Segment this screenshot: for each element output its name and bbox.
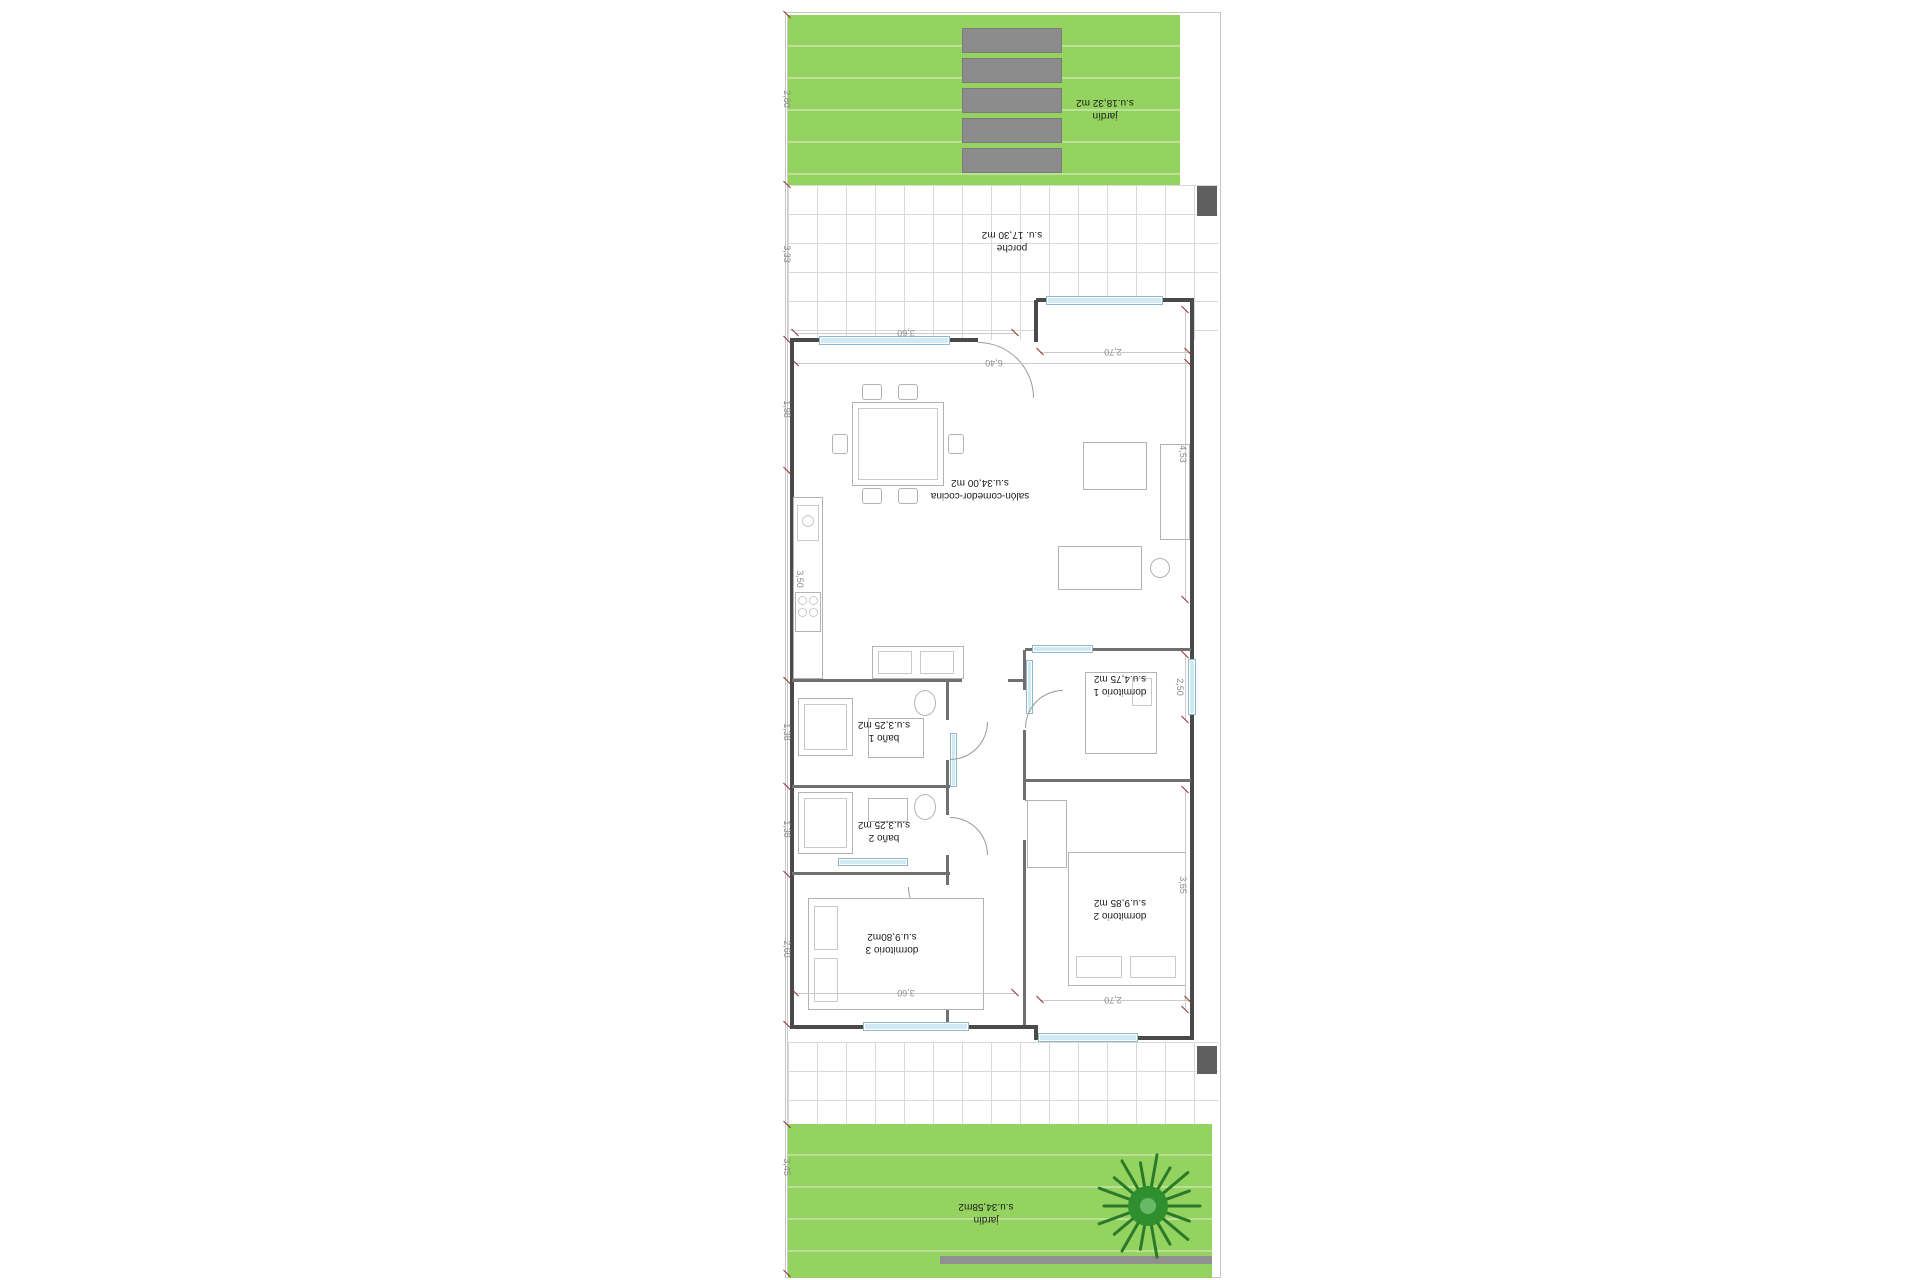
interior-wall bbox=[792, 785, 950, 788]
appliance bbox=[878, 651, 912, 674]
interior-wall bbox=[792, 872, 950, 875]
chair bbox=[898, 384, 918, 400]
dim-label: 3,45 bbox=[782, 1154, 792, 1180]
dimension-tick-icon bbox=[1035, 347, 1045, 357]
dim-label: 3,50 bbox=[795, 566, 805, 592]
plant-icon bbox=[1092, 1150, 1204, 1262]
dimension-tick-icon bbox=[790, 328, 800, 338]
dim-label: 4,53 bbox=[1178, 441, 1188, 467]
burner bbox=[809, 608, 818, 617]
room-name: dormitorio 3 bbox=[817, 943, 967, 956]
dimension-tick-icon bbox=[782, 10, 792, 20]
room-area: s.u.34,00 m2 bbox=[905, 476, 1055, 489]
wall bbox=[1190, 715, 1194, 1040]
dimension-tick-icon bbox=[1180, 1005, 1190, 1015]
dimension-tick-icon bbox=[1183, 347, 1193, 357]
dim-label: 2,70 bbox=[1098, 995, 1128, 1005]
porch-label: porche s.u. 17,30 m2 bbox=[937, 228, 1087, 254]
dimension-tick-icon bbox=[790, 988, 800, 998]
dimension-tick-icon bbox=[782, 676, 792, 686]
room-area: s.u.9,80m2 bbox=[817, 930, 967, 943]
room-name: dormitorio 1 bbox=[1045, 685, 1195, 698]
garden-top-label: jardín s.u.18,32 m2 bbox=[1030, 96, 1180, 122]
window bbox=[1046, 296, 1163, 305]
wall bbox=[790, 1025, 863, 1029]
side-table bbox=[1150, 558, 1170, 578]
dormitorio3-label: dormitorio 3 s.u.9,80m2 bbox=[817, 930, 967, 956]
sink-basin bbox=[802, 515, 814, 527]
dimension-tick-icon bbox=[782, 180, 792, 190]
garden-bottom-label: jardín s.u.34,58m2 bbox=[911, 1200, 1061, 1226]
terrace-tiles bbox=[788, 1042, 1218, 1124]
room-area: s.u.4,75 m2 bbox=[1045, 672, 1195, 685]
dimension-tick-icon bbox=[1010, 328, 1020, 338]
dimension-tick-icon bbox=[1180, 715, 1190, 725]
window bbox=[1038, 1033, 1138, 1042]
dim-label: 3,33 bbox=[782, 241, 792, 267]
interior-wall bbox=[946, 681, 949, 720]
dining-table-top bbox=[858, 408, 938, 480]
room-name: salón-comedor-cocina bbox=[905, 489, 1055, 502]
room-area: s.u.34,58m2 bbox=[911, 1200, 1061, 1213]
paver-slab bbox=[962, 148, 1062, 173]
dimension-tick-icon bbox=[790, 358, 800, 368]
room-name: porche bbox=[937, 241, 1087, 254]
window bbox=[838, 858, 908, 866]
paver-slab bbox=[962, 58, 1062, 83]
interior-wall bbox=[792, 679, 950, 682]
wall bbox=[1138, 1036, 1194, 1040]
dimension-line bbox=[1185, 655, 1186, 720]
dimension-tick-icon bbox=[1180, 595, 1190, 605]
tv-unit bbox=[1083, 442, 1147, 490]
room-name: dormitorio 2 bbox=[1045, 909, 1195, 922]
dim-label: 2,50 bbox=[1175, 674, 1185, 700]
dim-label: 3,60 bbox=[891, 328, 921, 338]
dimension-tick-icon bbox=[782, 466, 792, 476]
dormitorio2-label: dormitorio 2 s.u.9,85 m2 bbox=[1045, 896, 1195, 922]
dim-label: 1,38 bbox=[782, 719, 792, 745]
room-area: s.u.3,25 m2 bbox=[809, 718, 959, 731]
window bbox=[1032, 645, 1093, 653]
dimension-tick-icon bbox=[1180, 650, 1190, 660]
dim-label: 1,38 bbox=[782, 816, 792, 842]
sofa bbox=[1058, 546, 1142, 590]
room-name: jardín bbox=[1030, 109, 1180, 122]
wall bbox=[950, 338, 978, 342]
dim-label: 1,98 bbox=[782, 396, 792, 422]
interior-wall bbox=[1093, 648, 1191, 651]
toilet bbox=[914, 690, 936, 716]
room-name: jardín bbox=[911, 1213, 1061, 1226]
dimension-tick-icon bbox=[1180, 785, 1190, 795]
dimension-tick-icon bbox=[782, 1269, 792, 1279]
window bbox=[863, 1022, 969, 1031]
dim-label: 6,40 bbox=[979, 358, 1009, 368]
porch-pillar bbox=[1197, 186, 1217, 216]
interior-wall bbox=[1025, 648, 1032, 651]
bano2-label: baño 2 s.u.3,25 m2 bbox=[809, 818, 959, 844]
dimension-tick-icon bbox=[782, 1020, 792, 1030]
chair bbox=[948, 434, 964, 454]
dim-label: 2,80 bbox=[782, 86, 792, 112]
interior-wall bbox=[946, 760, 949, 815]
room-area: s.u.9,85 m2 bbox=[1045, 896, 1195, 909]
dimension-tick-icon bbox=[782, 1120, 792, 1130]
wall bbox=[790, 338, 819, 342]
dimension-tick-icon bbox=[1183, 358, 1193, 368]
bano1-label: baño 1 s.u.3,25 m2 bbox=[809, 718, 959, 744]
wall bbox=[1034, 300, 1038, 342]
dimension-tick-icon bbox=[782, 870, 792, 880]
interior-wall bbox=[1023, 840, 1026, 1025]
dimension-line bbox=[1185, 790, 1186, 1010]
interior-wall bbox=[1023, 730, 1026, 800]
floor-plan: jardín s.u.18,32 m2 porche s.u. 17,30 m2 bbox=[0, 0, 1920, 1280]
wardrobe bbox=[1027, 800, 1067, 868]
burner bbox=[809, 596, 818, 605]
room-area: s.u.18,32 m2 bbox=[1030, 96, 1180, 109]
dimension-tick-icon bbox=[1180, 305, 1190, 315]
chair bbox=[832, 434, 848, 454]
house-floor-right bbox=[1036, 302, 1192, 344]
interior-wall bbox=[948, 679, 962, 682]
appliance bbox=[920, 651, 954, 674]
interior-wall bbox=[1025, 779, 1191, 782]
dimension-tick-icon bbox=[1010, 988, 1020, 998]
dim-label: 2,70 bbox=[1098, 347, 1128, 357]
chair bbox=[862, 488, 882, 504]
salon-label: salón-comedor-cocina s.u.34,00 m2 bbox=[905, 476, 1055, 502]
pillow bbox=[1130, 956, 1176, 978]
dim-label: 3,60 bbox=[891, 988, 921, 998]
dim-label: 3,65 bbox=[1178, 872, 1188, 898]
dim-label: 2,60 bbox=[782, 936, 792, 962]
room-area: s.u. 17,30 m2 bbox=[937, 228, 1087, 241]
wall bbox=[1036, 298, 1046, 302]
dimension-tick-icon bbox=[1035, 995, 1045, 1005]
window bbox=[819, 336, 950, 345]
dimension-tick-icon bbox=[1183, 995, 1193, 1005]
terrace-pillar bbox=[1197, 1046, 1217, 1074]
interior-wall bbox=[946, 855, 949, 885]
room-name: baño 2 bbox=[809, 831, 959, 844]
chair bbox=[862, 384, 882, 400]
burner bbox=[798, 608, 807, 617]
burner bbox=[798, 596, 807, 605]
room-area: s.u.3,25 m2 bbox=[809, 818, 959, 831]
room-name: baño 1 bbox=[809, 731, 959, 744]
toilet bbox=[914, 794, 936, 820]
dormitorio1-label: dormitorio 1 s.u.4,75 m2 bbox=[1045, 672, 1195, 698]
dimension-tick-icon bbox=[782, 782, 792, 792]
paver-slab bbox=[962, 28, 1062, 53]
wall bbox=[969, 1025, 1038, 1029]
pillow bbox=[1076, 956, 1122, 978]
dimension-line bbox=[787, 15, 788, 1276]
pillow bbox=[814, 958, 838, 1002]
